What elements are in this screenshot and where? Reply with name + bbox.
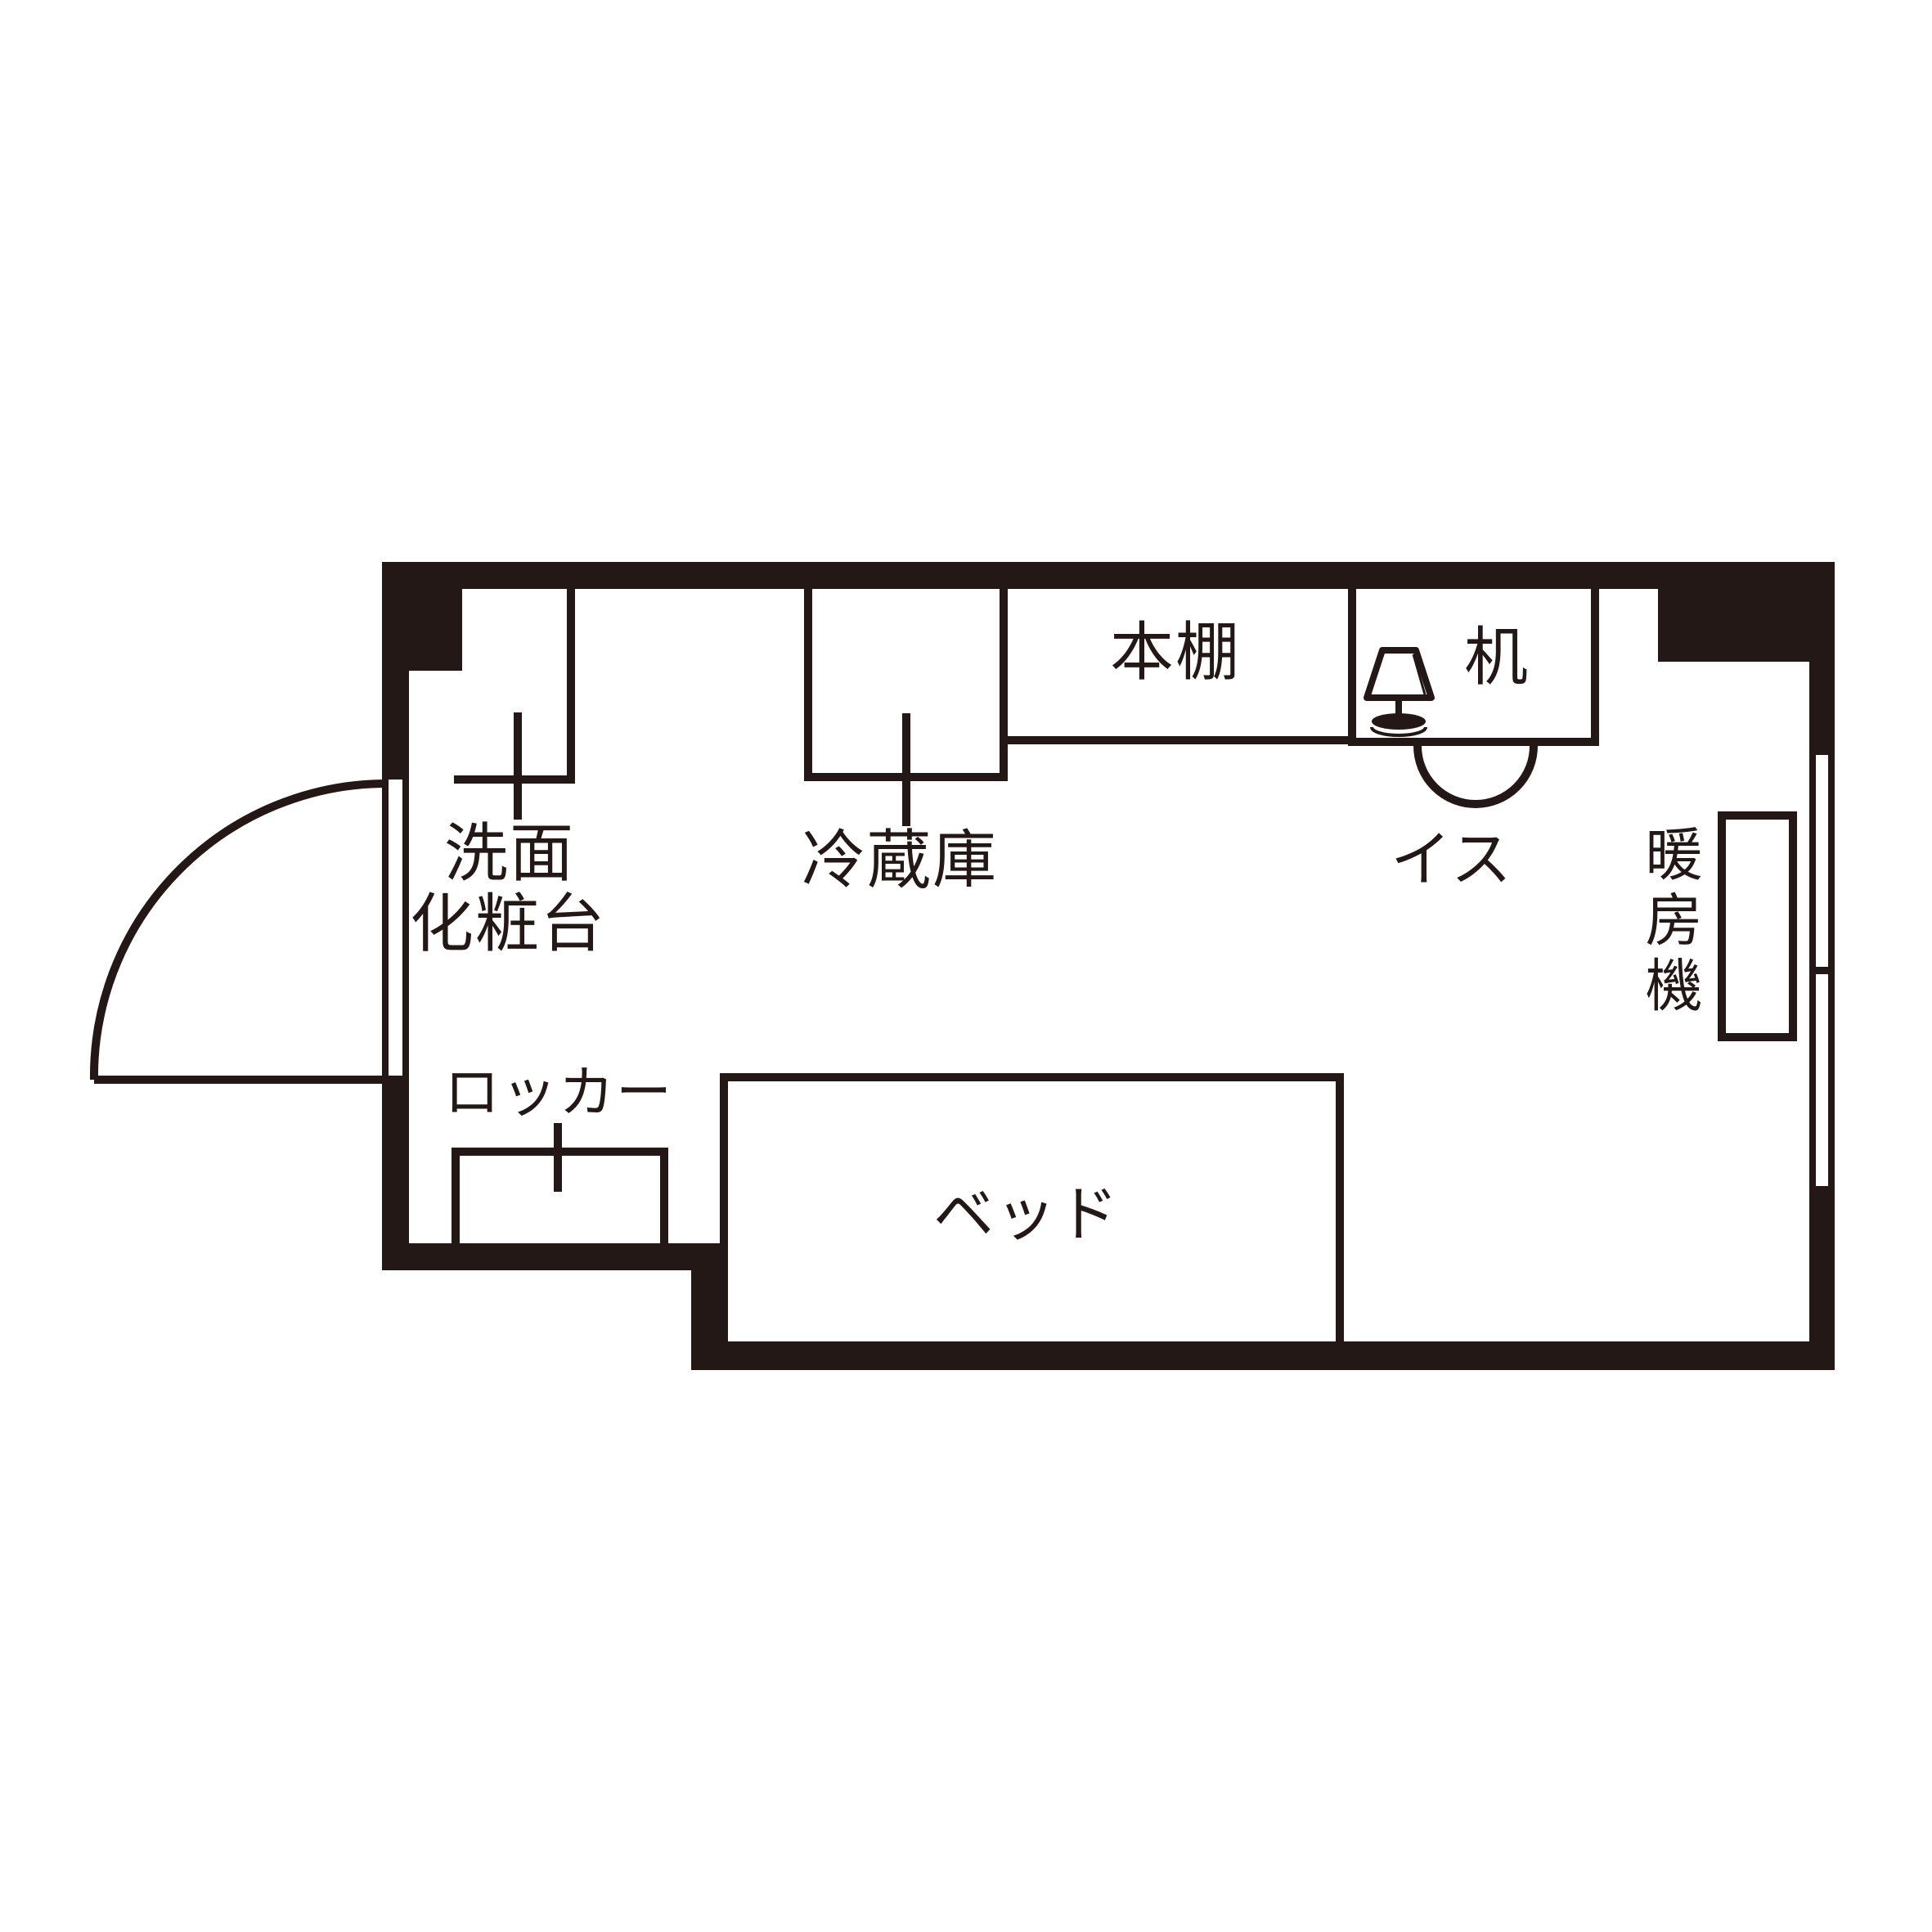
door-swing-arc-icon	[94, 784, 382, 1080]
desk-label: 机	[1464, 625, 1530, 689]
refrigerator-label: 冷蔵庫	[802, 828, 998, 892]
bed-label: ベッド	[933, 1184, 1120, 1245]
floorplan-canvas: 洗面 化粧台 冷蔵庫 本棚 机 イス 暖房機 ロッカー ベッド	[0, 0, 1932, 1932]
chair-label: イス	[1391, 829, 1513, 890]
lamp-shade	[1367, 650, 1431, 698]
chair-arc-icon	[1418, 746, 1534, 804]
lamp-base	[1372, 713, 1426, 730]
locker-label: ロッカー	[444, 1065, 673, 1121]
bookshelf-label: 本棚	[1110, 620, 1241, 684]
washbasin-label-line1: 洗面	[444, 821, 575, 885]
lamp-icon	[1367, 650, 1431, 735]
washbasin-label-line2: 化粧台	[410, 892, 606, 955]
heater-label: 暖房機	[1641, 824, 1698, 1021]
